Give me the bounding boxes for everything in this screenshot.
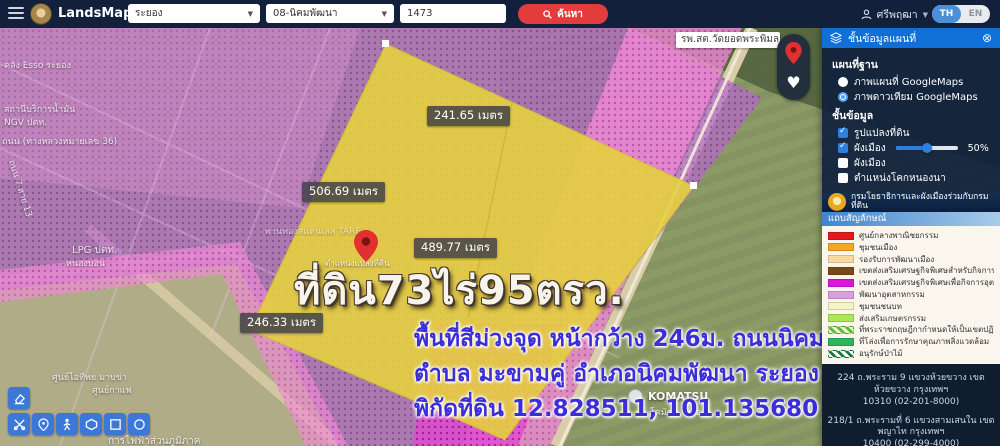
contact-footer: 224 ถ.พระราม 9 แขวงห้วยขวาง เขตห้วยขวาง …: [822, 364, 1000, 446]
chevron-down-icon: ▼: [248, 10, 253, 18]
legend-chip: [828, 267, 854, 275]
chevron-down-icon: ▼: [382, 10, 387, 18]
eraser-icon: [13, 392, 26, 405]
landsmaps-app: LandsMaps ระยอง ▼ 08-นิคมพัฒนา ▼ ค้นหา ศ…: [0, 0, 1000, 446]
search-icon: [543, 10, 552, 19]
map-label: คลัง Esso ระยอง: [4, 58, 71, 72]
lang-en-button[interactable]: EN: [961, 5, 990, 23]
marker-tool-button[interactable]: [32, 413, 54, 435]
map-label: การไฟฟ้าส่วนภูมิภาค: [108, 434, 200, 446]
basemap-group-label: แผนที่ฐาน: [832, 56, 990, 73]
top-bar: LandsMaps ระยอง ▼ 08-นิคมพัฒนา ▼ ค้นหา ศ…: [0, 0, 1000, 28]
hexagon-icon: [85, 418, 98, 431]
legend-item: อนุรักษ์ป่าไม้: [828, 348, 994, 360]
legend-title: แถบสัญลักษณ์: [822, 212, 1000, 226]
layer-option-cityplan-overlay[interactable]: ผังเมือง 50%: [838, 141, 990, 155]
legend-chip: [828, 314, 854, 322]
checkbox-icon[interactable]: [838, 173, 848, 183]
map-label: ถนน (ทางหลวงหมายเลข 36): [2, 134, 117, 148]
close-icon[interactable]: ⊗: [982, 32, 992, 44]
polygon-tool-button[interactable]: [80, 413, 102, 435]
measure-label-right: 489.77 เมตร: [414, 238, 497, 258]
radio-icon[interactable]: [838, 77, 848, 87]
legend-chip: [828, 326, 854, 334]
legend-item: ที่พระราชกฤษฎีกากำหนดให้เป็นเขตปฏิรูปที่…: [828, 324, 994, 336]
layer-option-khoknongna[interactable]: ตำแหน่งโคกหนองนา: [838, 171, 990, 185]
circle-icon: [133, 418, 146, 431]
basemap-option-map[interactable]: ภาพแผนที่ GoogleMaps: [838, 75, 990, 89]
agency-emblem-icon: [828, 193, 846, 211]
measure-label-top: 241.65 เมตร: [427, 106, 510, 126]
parcel-number-input[interactable]: [400, 4, 506, 23]
map-label: ศูนย์ไอทีพย มาบข่า: [52, 370, 127, 384]
measure-label-left: 506.69 เมตร: [302, 182, 385, 202]
language-toggle: TH EN: [932, 5, 990, 23]
layers-panel: ชั้นข้อมูลแผนที่ ⊗ แผนที่ฐาน ภาพแผนที่ G…: [822, 28, 1000, 193]
eraser-tool-button[interactable]: [8, 387, 30, 409]
layers-panel-title: ชั้นข้อมูลแผนที่: [848, 30, 976, 47]
layer-option-parcels[interactable]: รูปแปลงที่ดิน: [838, 126, 990, 140]
agency-banner: กรมโยธาธิการและผังเมืองร่วมกับกรมที่ดิน: [822, 193, 1000, 212]
pin-button[interactable]: [785, 42, 802, 64]
radio-icon[interactable]: [838, 92, 848, 102]
legend-item: รองรับการพัฒนาเมือง: [828, 253, 994, 265]
parcel-info-annotation: พื้นที่สีม่วงจุด หน้ากว้าง 246ม. ถนนนิคม…: [414, 322, 780, 427]
district-select[interactable]: 08-นิคมพัฒนา ▼: [266, 4, 394, 23]
checkbox-icon[interactable]: [838, 128, 848, 138]
marker-actions-pill: ♥: [777, 34, 810, 100]
legend-item: เขตส่งเสริมเศรษฐกิจพิเศษสำหรับกิจการพิเศ…: [828, 265, 994, 277]
square-icon: [109, 418, 122, 431]
pegman-icon: [61, 418, 73, 431]
map-label: พานทองสแตนเลส TARF: [265, 224, 361, 238]
layers-group-label: ชั้นข้อมูล: [832, 107, 990, 124]
opacity-value: 50%: [968, 143, 989, 154]
legend-item: ชุมชนชนบท: [828, 300, 994, 312]
app-logo: [30, 3, 52, 25]
legend-item: ศูนย์กลางพาณิชยกรรม: [828, 230, 994, 242]
map-label: NGV ปตท.: [4, 115, 47, 129]
parcel-vertex: [382, 40, 389, 47]
legend-item: ชุมชนเมือง: [828, 241, 994, 253]
menu-icon[interactable]: [8, 7, 24, 20]
side-panel: ชั้นข้อมูลแผนที่ ⊗ แผนที่ฐาน ภาพแผนที่ G…: [822, 28, 1000, 446]
legend-chip: [828, 338, 854, 346]
layer-option-cityplan[interactable]: ผังเมือง: [838, 156, 990, 170]
map-label: หนองบอน: [66, 256, 105, 270]
cut-tool-button[interactable]: [8, 413, 30, 435]
favorite-heart-icon[interactable]: ♥: [777, 75, 810, 91]
basemap-option-satellite[interactable]: ภาพดาวเทียม GoogleMaps: [838, 90, 990, 104]
province-select[interactable]: ระยอง ▼: [128, 4, 260, 23]
legend-chip: [828, 279, 854, 287]
poi-tooltip: รพ.สต.วัดยอดพระพิมล: [676, 32, 780, 48]
legend-chip: [828, 243, 854, 251]
legend-chip: [828, 350, 854, 358]
checkbox-icon[interactable]: [838, 143, 848, 153]
legend-item: เขตส่งเสริมเศรษฐกิจพิเศษเพื่อกิจการอุตสา…: [828, 277, 994, 289]
legend-chip: [828, 291, 854, 299]
rectangle-tool-button[interactable]: [104, 413, 126, 435]
pin-icon: [38, 418, 49, 431]
search-button[interactable]: ค้นหา: [518, 4, 608, 24]
layers-icon: [830, 32, 842, 44]
opacity-slider[interactable]: [896, 146, 958, 150]
legend-item: ส่งเสริมเกษตรกรรม: [828, 312, 994, 324]
map-label: ศูนย์กาแฟ: [92, 383, 132, 397]
parcel-vertex: [690, 182, 697, 189]
legend-chip: [828, 302, 854, 310]
streetview-tool-button[interactable]: [56, 413, 78, 435]
lang-th-button[interactable]: TH: [932, 5, 961, 23]
map-label: สถานีบริการน้ำมัน: [4, 102, 75, 116]
legend-chip: [828, 255, 854, 263]
legend-item: พัฒนาอุตสาหกรรม: [828, 289, 994, 301]
parcel-area-title: ที่ดิน73ไร่95ตรว.: [294, 258, 625, 322]
legend-item: ที่โล่งเพื่อการรักษาคุณภาพสิ่งแวดล้อม: [828, 336, 994, 348]
user-name: ศรีพฤฒา: [877, 6, 918, 23]
checkbox-icon[interactable]: [838, 158, 848, 168]
legend-panel: แถบสัญลักษณ์ ศูนย์กลางพาณิชยกรรม ชุมชนเม…: [822, 212, 1000, 365]
circle-tool-button[interactable]: [128, 413, 150, 435]
chevron-down-icon: ▼: [923, 11, 928, 19]
scissors-icon: [13, 418, 26, 431]
user-menu[interactable]: ศรีพฤฒา ▼: [861, 6, 928, 23]
agency-banner-text: กรมโยธาธิการและผังเมืองร่วมกับกรมที่ดิน: [851, 193, 994, 212]
legend-chip: [828, 232, 854, 240]
user-icon: [861, 9, 872, 20]
